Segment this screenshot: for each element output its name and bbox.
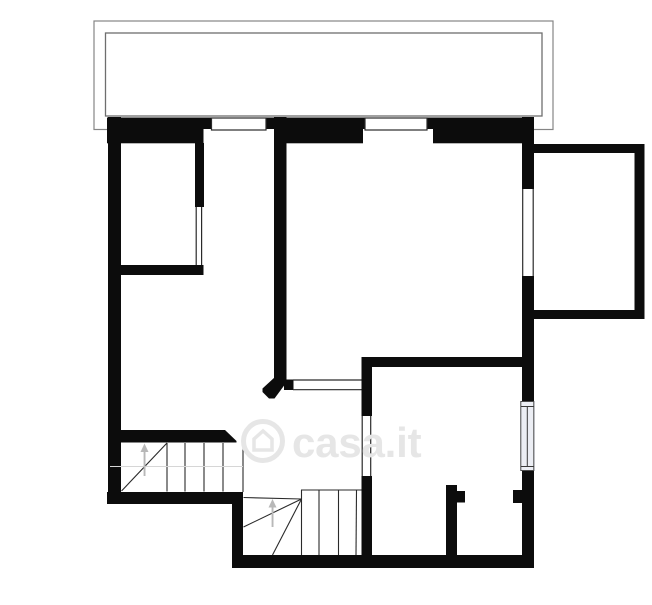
svg-text:casa.it: casa.it (292, 419, 422, 466)
